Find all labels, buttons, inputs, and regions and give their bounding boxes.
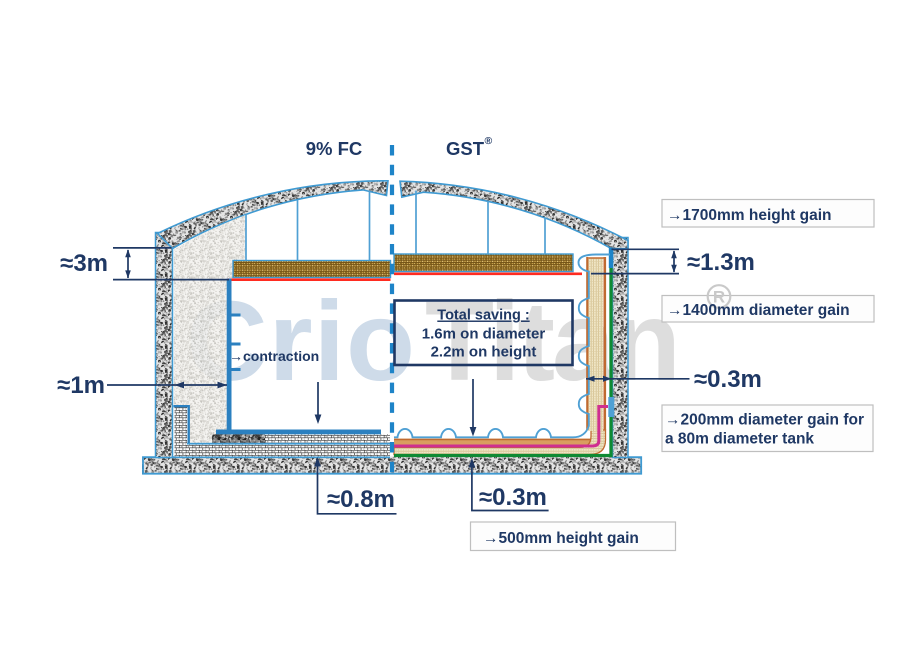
svg-text:≈1m: ≈1m — [57, 372, 105, 399]
svg-text:≈0.3m: ≈0.3m — [694, 366, 762, 393]
svg-text:≈1.3m: ≈1.3m — [687, 249, 755, 276]
svg-text:a 80m diameter tank: a 80m diameter tank — [665, 431, 814, 448]
svg-text:→200mm diameter gain for: →200mm diameter gain for — [665, 412, 864, 429]
svg-text:®: ® — [485, 135, 493, 147]
svg-text:9% FC: 9% FC — [306, 138, 363, 159]
svg-text:≈3m: ≈3m — [60, 250, 108, 277]
svg-text:Total saving :: Total saving : — [437, 308, 529, 324]
svg-text:→contraction: →contraction — [229, 348, 319, 364]
svg-text:≈0.8m: ≈0.8m — [327, 486, 395, 513]
svg-text:GST: GST — [446, 138, 485, 159]
svg-text:→1400mm diameter gain: →1400mm diameter gain — [667, 302, 850, 319]
svg-text:→1700mm height gain: →1700mm height gain — [667, 207, 832, 224]
svg-text:→500mm height gain: →500mm height gain — [483, 530, 639, 547]
svg-text:2.2m on height: 2.2m on height — [431, 344, 537, 361]
svg-text:≈0.3m: ≈0.3m — [479, 484, 547, 511]
svg-text:1.6m on diameter: 1.6m on diameter — [422, 326, 546, 343]
